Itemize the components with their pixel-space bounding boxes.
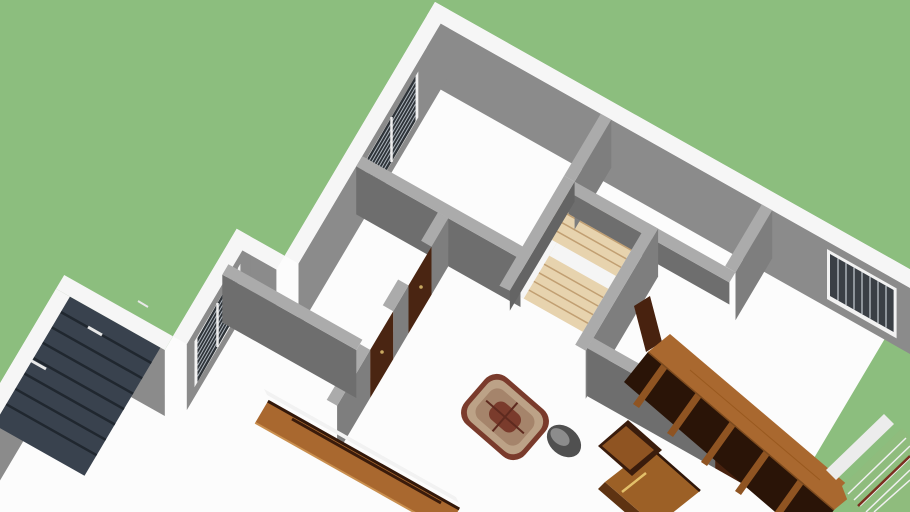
door-knob — [380, 350, 384, 354]
scene-objects — [0, 0, 910, 512]
model-viewport[interactable] — [0, 0, 910, 512]
door-knob — [419, 285, 423, 289]
floorplan-3d-canvas[interactable] — [0, 0, 910, 512]
